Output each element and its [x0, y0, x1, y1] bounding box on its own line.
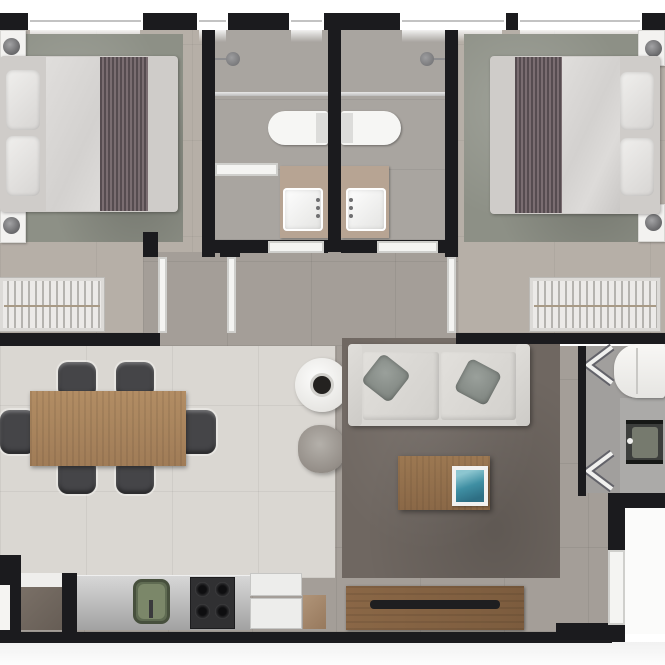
wall-top — [506, 13, 518, 30]
exterior-top — [0, 0, 665, 13]
wall-entry-side — [608, 508, 625, 550]
bathroom-1-door-threshold — [268, 241, 324, 253]
kitchen-service-closet — [21, 587, 62, 630]
hallway-floor — [143, 252, 458, 346]
window — [289, 13, 324, 30]
bedroom-2-lamp-bottom — [645, 214, 662, 231]
wall-bedroom1-bottom — [0, 333, 160, 346]
kitchen-cabinet — [303, 595, 326, 629]
window — [400, 13, 506, 30]
window — [28, 13, 143, 30]
bedroom-2-pillow — [620, 138, 654, 196]
apartment-floor-plan — [0, 0, 665, 665]
bathroom-2-faucet — [349, 198, 353, 202]
entry-exterior-floor — [625, 508, 665, 634]
wall-laundry-bottom — [608, 493, 665, 508]
wall-bottom — [0, 632, 612, 643]
folding-door-symbol — [583, 450, 615, 492]
bathroom-1-door-leaf — [215, 163, 278, 176]
wall-hall-pier — [220, 243, 240, 257]
wall-hall-pier — [143, 232, 158, 257]
exterior-bottom — [0, 642, 665, 665]
bathroom-1-shower-head-icon — [226, 52, 240, 66]
kitchen-left-inset — [0, 585, 10, 630]
window — [197, 13, 228, 30]
bedroom-1-lamp-bottom — [3, 217, 20, 234]
window-glow — [291, 30, 322, 42]
bedroom-1-door-frame — [158, 257, 167, 333]
bedroom-2-wardrobe — [530, 278, 660, 331]
wall-top — [642, 13, 665, 30]
wall-bathroom2-bedroom2 — [445, 30, 458, 257]
bedroom-2-door-frame — [447, 257, 456, 333]
coffee-table-book-cover — [456, 470, 484, 502]
kitchen-faucet — [149, 600, 153, 618]
hall-door-frame — [227, 257, 236, 333]
window — [518, 13, 642, 30]
bedroom-2-lamp-top — [645, 40, 662, 57]
refrigerator-bottom — [250, 598, 302, 629]
bathroom-2-shower-head-icon — [420, 52, 434, 66]
sofa-armrest-right — [516, 344, 530, 426]
bedroom-1-pillow — [6, 136, 40, 196]
wall-between-bathrooms — [328, 30, 341, 252]
refrigerator-top — [250, 573, 302, 596]
bedroom-1-lamp-top — [3, 38, 20, 55]
wall-top — [324, 13, 400, 30]
wall-bedroom2-bottom — [456, 333, 665, 344]
wall-top — [0, 13, 28, 30]
cooktop — [190, 577, 235, 629]
bedroom-2-throw-blanket — [515, 57, 562, 213]
bathroom-2-toilet-tank — [341, 113, 353, 143]
burner-icon — [195, 604, 210, 619]
laundry-tub-faucet — [627, 438, 633, 444]
wall-top — [228, 13, 289, 30]
washing-machine — [614, 344, 665, 398]
bathroom-1-faucet — [316, 198, 320, 202]
bathroom-1-toilet-tank — [316, 113, 328, 143]
entry-door-frame — [608, 550, 625, 625]
wall-top — [143, 13, 197, 30]
wall-laundry-left — [578, 346, 586, 496]
bedroom-1-pillow — [6, 70, 40, 130]
folding-door-symbol — [583, 344, 615, 386]
bedroom-1-wardrobe — [0, 278, 104, 331]
dining-table — [30, 391, 186, 466]
bedroom-1-throw-blanket — [100, 57, 148, 211]
bathroom-2-door-threshold — [377, 241, 438, 253]
sofa-armrest-left — [348, 344, 362, 426]
pouf — [298, 425, 346, 473]
laundry-tub-basin — [632, 427, 658, 458]
bathroom-2-sink — [346, 188, 386, 231]
burner-icon — [215, 582, 230, 597]
burner-icon — [215, 604, 230, 619]
bathroom-1-shower-glass — [215, 92, 328, 96]
bedroom-2-pillow — [620, 72, 654, 130]
side-table-cup — [313, 376, 331, 394]
bathroom-2-shower-glass — [341, 92, 445, 96]
kitchen-service-sill — [21, 573, 62, 587]
burner-icon — [195, 582, 210, 597]
wall-bedroom1-bathroom1 — [202, 30, 215, 257]
bedroom-2-duvet — [562, 57, 620, 213]
wall-kitchen-pier — [62, 573, 77, 633]
tv — [370, 600, 500, 609]
bathroom-1-sink — [283, 188, 323, 231]
washing-machine-door-line — [636, 348, 638, 394]
